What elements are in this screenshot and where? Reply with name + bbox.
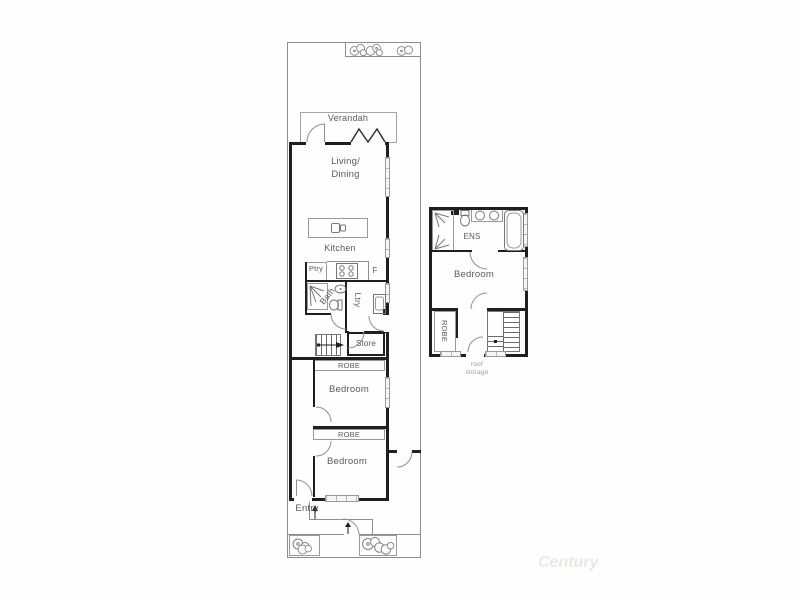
door-arc xyxy=(468,337,483,352)
living-dining-label-line2: Dining xyxy=(318,168,373,180)
living-dining-label-line1: Living/ xyxy=(318,155,373,167)
watermark: Century xyxy=(538,554,598,572)
door-arc xyxy=(316,407,331,422)
kitchen-label: Kitchen xyxy=(315,242,365,253)
door-arc xyxy=(296,480,312,496)
path-line xyxy=(309,519,373,520)
robe-label: ROBE xyxy=(439,319,451,343)
door-opening xyxy=(294,495,312,502)
toilet-icon xyxy=(459,210,471,227)
window xyxy=(523,257,528,291)
roof-storage-label-line2: storage xyxy=(459,368,495,376)
gate-arc xyxy=(397,452,412,467)
pantry-label: Ptry xyxy=(305,263,327,274)
wall xyxy=(412,450,421,453)
toilet-icon xyxy=(329,299,343,312)
store-label: Store xyxy=(349,337,383,349)
shrub-icon xyxy=(296,543,314,556)
window xyxy=(440,351,461,357)
entry-label: Entry xyxy=(292,502,322,514)
cooktop-icon xyxy=(336,263,358,279)
laundry-label: Ltry xyxy=(352,288,364,312)
fridge-label: F xyxy=(369,264,381,276)
stairs-arrow-icon xyxy=(317,341,344,349)
wall xyxy=(389,450,397,453)
bedroom-label: Bedroom xyxy=(318,455,376,467)
laundry-trough-icon xyxy=(373,294,386,314)
shower-spray-icon xyxy=(433,231,453,251)
window xyxy=(325,495,359,502)
bathtub-icon xyxy=(504,210,524,251)
door-arc xyxy=(369,316,384,331)
robe-label: ROBE xyxy=(313,429,385,440)
robe-label: ROBE xyxy=(313,360,385,371)
door-arc xyxy=(307,124,325,142)
sink-icon xyxy=(331,223,346,233)
bifold-door-icon xyxy=(351,128,385,143)
verandah-label: Verandah xyxy=(318,113,378,123)
door-arc xyxy=(470,252,487,269)
bedroom-label: Bedroom xyxy=(445,268,503,280)
bedroom-label: Bedroom xyxy=(320,383,378,395)
window xyxy=(385,157,390,197)
gate-arc xyxy=(343,519,359,535)
door-arc xyxy=(471,293,487,309)
shrub-icon xyxy=(372,541,396,556)
roof-storage-label-line1: roof xyxy=(459,360,495,368)
floor-plan: Verandah Living/ Dining Kitchen Ptry F B… xyxy=(0,0,800,600)
door-opening xyxy=(384,315,391,332)
shrub-icon xyxy=(363,43,385,57)
door-arc xyxy=(316,441,331,456)
shower-spray-icon xyxy=(433,211,453,231)
shrub-icon xyxy=(394,43,416,57)
door-arc xyxy=(331,314,346,329)
vanity-basins-icon xyxy=(471,209,503,222)
window xyxy=(485,351,506,357)
ensuite-label: ENS xyxy=(458,231,486,242)
path-line xyxy=(372,519,373,535)
window xyxy=(385,377,390,408)
window xyxy=(385,238,390,258)
